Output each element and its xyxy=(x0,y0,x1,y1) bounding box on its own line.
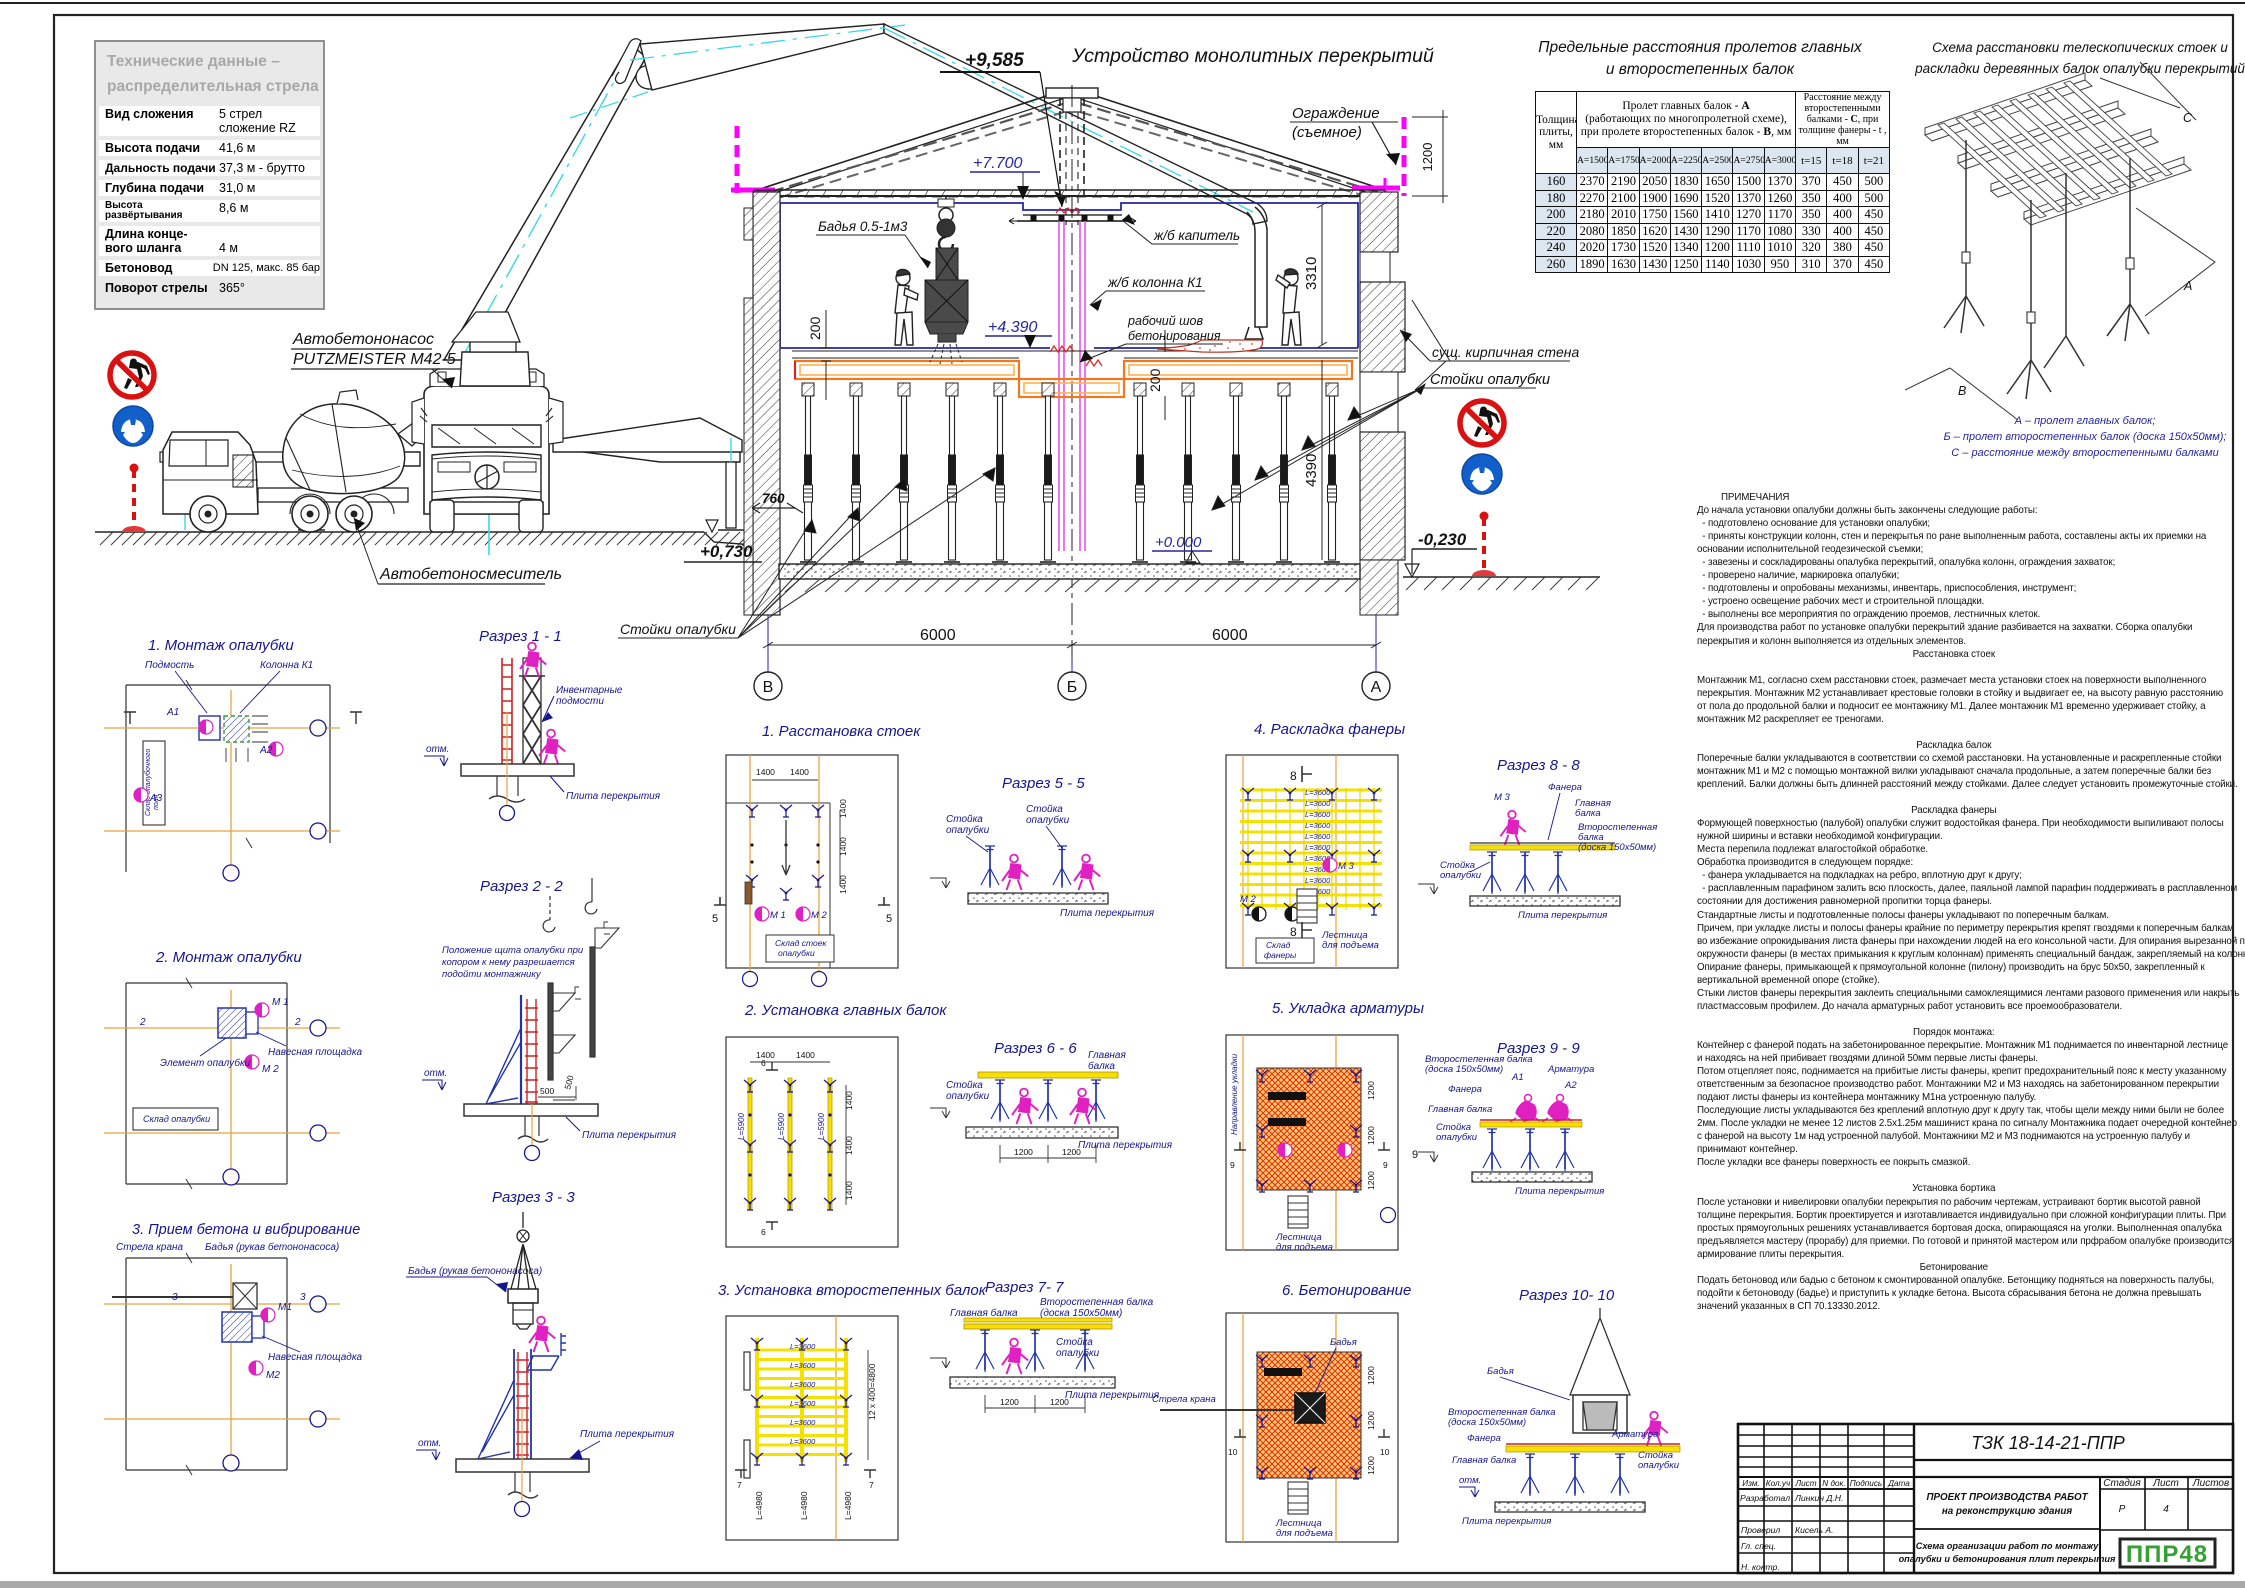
svg-text:9: 9 xyxy=(1383,1160,1388,1170)
svg-text:С – расстояние между второсте: С – расстояние между второстепенными бал… xyxy=(1951,447,2218,459)
svg-text:1200: 1200 xyxy=(1366,1126,1376,1145)
svg-text:2. Монтаж опалубки: 2. Монтаж опалубки xyxy=(155,949,302,966)
svg-text:Бадья (рукав бетононасоса): Бадья (рукав бетононасоса) xyxy=(205,1241,339,1253)
svg-text:6. Бетонирование: 6. Бетонирование xyxy=(1282,1282,1411,1299)
svg-text:L=4980: L=4980 xyxy=(754,1491,764,1520)
svg-text:Второстепенная балка: Второстепенная балка xyxy=(1040,1296,1154,1308)
svg-text:на реконструкцию здания: на реконструкцию здания xyxy=(1942,1506,2072,1517)
svg-text:1200: 1200 xyxy=(1366,1411,1376,1430)
svg-text:копором к нему разрешается: копором к нему разрешается xyxy=(442,957,575,968)
svg-text:760: 760 xyxy=(762,491,785,506)
svg-text:фанеры: фанеры xyxy=(1264,950,1297,960)
svg-text:L=3600: L=3600 xyxy=(790,1437,816,1446)
svg-text:1. Расстановка стоек: 1. Расстановка стоек xyxy=(762,723,921,740)
svg-text:2: 2 xyxy=(139,1017,146,1028)
svg-text:1200: 1200 xyxy=(1366,1456,1376,1475)
svg-text:А: А xyxy=(2183,279,2192,293)
svg-text:L=3600: L=3600 xyxy=(1305,843,1331,852)
svg-text:Плита перекрытия: Плита перекрытия xyxy=(1462,1516,1551,1527)
svg-text:Главная: Главная xyxy=(1088,1050,1126,1061)
svg-text:L=3600: L=3600 xyxy=(790,1380,816,1389)
svg-text:М 2: М 2 xyxy=(262,1064,279,1075)
svg-text:1400: 1400 xyxy=(796,1050,815,1060)
svg-text:В: В xyxy=(1958,384,1966,398)
svg-text:8: 8 xyxy=(1290,769,1297,783)
svg-text:Главная балка: Главная балка xyxy=(1452,1455,1516,1466)
svg-text:10: 10 xyxy=(1380,1447,1390,1457)
svg-text:Навесная площадка: Навесная площадка xyxy=(268,1352,363,1363)
svg-text:Бадья: Бадья xyxy=(1330,1337,1357,1348)
svg-text:Бадья: Бадья xyxy=(1487,1366,1514,1377)
svg-text:Плита перекрытия: Плита перекрытия xyxy=(1060,908,1155,919)
svg-text:Стрела крана: Стрела крана xyxy=(116,1242,184,1253)
svg-text:подойти монтажнику: подойти монтажнику xyxy=(442,969,542,980)
svg-text:Склад опалубочного: Склад опалубочного xyxy=(144,749,152,816)
svg-text:3. Установка второстепенных б: 3. Установка второстепенных балок xyxy=(718,1282,987,1299)
svg-text:Разработал: Разработал xyxy=(1740,1493,1790,1503)
svg-text:опалубки: опалубки xyxy=(1026,814,1070,826)
svg-text:Схема организации работ по мон: Схема организации работ по монтажу xyxy=(1916,1541,2100,1551)
svg-text:Схема расстановки телескопичес: Схема расстановки телескопических стоек … xyxy=(1932,40,2228,55)
svg-text:Разрез 8 - 8: Разрез 8 - 8 xyxy=(1497,757,1580,774)
svg-text:Автобетоносмеситель: Автобетоносмеситель xyxy=(379,566,562,583)
svg-text:PUTZMEISTER M42-5: PUTZMEISTER M42-5 xyxy=(293,351,456,368)
svg-text:10: 10 xyxy=(1228,1447,1238,1457)
svg-text:Положение щита опалубки при: Положение щита опалубки при xyxy=(442,945,584,956)
svg-text:ж/б колонна К1: ж/б колонна К1 xyxy=(1107,275,1203,290)
svg-text:А – пролет главных балок;: А – пролет главных балок; xyxy=(2014,415,2156,427)
svg-text:+9,585: +9,585 xyxy=(965,50,1024,71)
svg-text:Склад опалубки: Склад опалубки xyxy=(143,1114,210,1124)
svg-text:Кисель А.: Кисель А. xyxy=(1795,1525,1834,1535)
svg-text:А: А xyxy=(1371,679,1382,696)
svg-text:7: 7 xyxy=(869,1480,874,1490)
svg-text:опалубки и бетонирования плит: опалубки и бетонирования плит перекрытия xyxy=(1899,1554,2116,1564)
svg-text:1. Монтаж опалубки: 1. Монтаж опалубки xyxy=(148,637,294,654)
svg-text:7: 7 xyxy=(737,1480,742,1490)
svg-text:Арматура: Арматура xyxy=(1547,1064,1594,1075)
svg-text:4390: 4390 xyxy=(1303,454,1320,487)
svg-text:Лист: Лист xyxy=(1794,1479,1816,1488)
svg-text:1400: 1400 xyxy=(844,1091,854,1110)
svg-text:отм.: отм. xyxy=(1459,1475,1481,1486)
svg-text:Плита перекрытия: Плита перекрытия xyxy=(566,791,661,802)
svg-text:М 1: М 1 xyxy=(272,997,289,1008)
svg-text:1200: 1200 xyxy=(1420,143,1435,172)
svg-text:1200: 1200 xyxy=(1366,1081,1376,1100)
svg-text:500: 500 xyxy=(562,1074,575,1091)
svg-text:L=5900: L=5900 xyxy=(777,1113,786,1140)
svg-text:М 2: М 2 xyxy=(811,910,828,921)
svg-text:Главная балка: Главная балка xyxy=(950,1307,1018,1319)
svg-text:С: С xyxy=(2183,111,2193,125)
svg-text:Стойка: Стойка xyxy=(1026,804,1063,815)
svg-text:Подпись: Подпись xyxy=(1850,1479,1882,1488)
svg-text:Склад: Склад xyxy=(1266,940,1291,950)
svg-text:опалубки: опалубки xyxy=(1436,1132,1478,1143)
svg-text:М 3: М 3 xyxy=(1338,861,1355,872)
svg-text:5: 5 xyxy=(886,913,892,925)
svg-text:М 1: М 1 xyxy=(770,910,786,921)
svg-text:L=5900: L=5900 xyxy=(737,1113,746,1140)
svg-text:5: 5 xyxy=(712,913,718,925)
svg-text:бетонирования: бетонирования xyxy=(1128,329,1221,343)
svg-text:L=5900: L=5900 xyxy=(817,1113,826,1140)
svg-text:Р: Р xyxy=(2119,1504,2126,1515)
svg-text:для подъема: для подъема xyxy=(1322,940,1379,951)
svg-text:6: 6 xyxy=(761,1058,766,1068)
svg-text:А1: А1 xyxy=(1511,1072,1524,1083)
svg-text:Элемент опалубки: Элемент опалубки xyxy=(160,1057,251,1069)
svg-text:1400: 1400 xyxy=(838,837,848,856)
svg-text:А2: А2 xyxy=(259,745,273,756)
svg-text:1200: 1200 xyxy=(1366,1366,1376,1385)
svg-text:4: 4 xyxy=(2163,1504,2169,1515)
svg-text:Разрез 10- 10: Разрез 10- 10 xyxy=(1519,1287,1615,1304)
svg-text:Стойки опалубки: Стойки опалубки xyxy=(620,621,736,637)
svg-text:Главная балка: Главная балка xyxy=(1428,1104,1492,1115)
svg-text:Арматура: Арматура xyxy=(1611,1429,1658,1440)
svg-text:М1: М1 xyxy=(278,1302,292,1313)
svg-text:500: 500 xyxy=(540,1086,554,1096)
svg-text:Б – пролет второстепенных бал: Б – пролет второстепенных балок (доска 1… xyxy=(1944,431,2227,443)
svg-text:Листов: Листов xyxy=(2192,1478,2229,1489)
svg-text:ТЗК 18-14-21-ППР: ТЗК 18-14-21-ППР xyxy=(1971,1433,2125,1453)
svg-text:Устройство монолитных перекрыт: Устройство монолитных перекрытий xyxy=(1071,45,1434,67)
svg-text:Плита перекрытия: Плита перекрытия xyxy=(580,1429,675,1440)
svg-text:1400: 1400 xyxy=(844,1181,854,1200)
svg-text:ж/б капитель: ж/б капитель xyxy=(1153,228,1240,243)
svg-text:L=3600: L=3600 xyxy=(1305,788,1331,797)
svg-text:сущ. кирпичная стена: сущ. кирпичная стена xyxy=(1432,344,1579,360)
svg-text:9: 9 xyxy=(1230,1160,1235,1170)
svg-text:Гл. спец.: Гл. спец. xyxy=(1741,1541,1776,1551)
svg-text:Н. контр.: Н. контр. xyxy=(1741,1562,1780,1572)
svg-text:6000: 6000 xyxy=(1212,627,1248,644)
svg-text:2. Установка главных балок: 2. Установка главных балок xyxy=(744,1002,947,1019)
svg-text:Разрез 3 - 3: Разрез 3 - 3 xyxy=(492,1189,575,1206)
svg-text:8: 8 xyxy=(1290,925,1297,939)
svg-text:рабочий шов: рабочий шов xyxy=(1127,314,1203,328)
svg-text:200: 200 xyxy=(807,316,823,340)
svg-text:L=3600: L=3600 xyxy=(1305,876,1331,885)
svg-text:М2: М2 xyxy=(266,1370,280,1381)
svg-text:5. Укладка арматуры: 5. Укладка арматуры xyxy=(1272,1000,1424,1017)
svg-text:М 2: М 2 xyxy=(1240,894,1257,905)
svg-text:Разрез 6 - 6: Разрез 6 - 6 xyxy=(994,1040,1077,1057)
svg-text:Стойка: Стойка xyxy=(946,814,983,825)
svg-text:Линкин Д.Н.: Линкин Д.Н. xyxy=(1794,1493,1843,1503)
svg-text:-0,230: -0,230 xyxy=(1418,530,1467,549)
svg-text:опалубки: опалубки xyxy=(1440,870,1482,881)
svg-text:1400: 1400 xyxy=(790,767,809,777)
svg-text:отм.: отм. xyxy=(426,744,449,755)
svg-text:1200: 1200 xyxy=(1000,1397,1019,1407)
svg-text:1200: 1200 xyxy=(1366,1171,1376,1190)
svg-text:Плита перекрытия: Плита перекрытия xyxy=(1078,1140,1173,1151)
svg-text:+4.390: +4.390 xyxy=(988,319,1037,336)
svg-text:Стадия: Стадия xyxy=(2103,1478,2141,1489)
svg-text:для подъема: для подъема xyxy=(1276,1242,1333,1253)
svg-text:+0.000: +0.000 xyxy=(1155,534,1202,551)
svg-text:Предельные расстояния пролетов: Предельные расстояния пролетов главных xyxy=(1538,39,1863,56)
svg-text:(доска 150х50мм): (доска 150х50мм) xyxy=(1448,1417,1526,1428)
svg-text:L=3600: L=3600 xyxy=(1305,832,1331,841)
svg-text:6: 6 xyxy=(761,1227,766,1237)
svg-text:отм.: отм. xyxy=(424,1068,447,1079)
svg-text:1400: 1400 xyxy=(838,875,848,894)
svg-text:Кол.уч: Кол.уч xyxy=(1766,1479,1791,1488)
svg-text:А1: А1 xyxy=(166,707,179,718)
svg-text:Плита перекрытия: Плита перекрытия xyxy=(582,1130,677,1141)
svg-text:Б: Б xyxy=(1067,679,1078,696)
svg-text:Проверил: Проверил xyxy=(1741,1525,1780,1535)
svg-text:Склад стоек: Склад стоек xyxy=(775,938,827,948)
svg-text:Стойка: Стойка xyxy=(946,1080,983,1091)
svg-text:балка: балка xyxy=(1088,1060,1115,1072)
svg-text:L=4980: L=4980 xyxy=(799,1491,809,1520)
svg-text:L=4980: L=4980 xyxy=(843,1491,853,1520)
svg-text:Стрела крана: Стрела крана xyxy=(1152,1394,1216,1405)
svg-text:12 х 400=4800: 12 х 400=4800 xyxy=(867,1363,877,1420)
svg-text:Плита перекрытия: Плита перекрытия xyxy=(1518,910,1607,921)
svg-text:опалубки: опалубки xyxy=(946,824,990,836)
svg-text:L=3600: L=3600 xyxy=(790,1399,816,1408)
svg-text:3: 3 xyxy=(172,1292,178,1303)
svg-text:подмости: подмости xyxy=(556,696,604,707)
svg-text:А2: А2 xyxy=(1564,1080,1577,1091)
svg-text:3310: 3310 xyxy=(1303,257,1320,290)
svg-text:А3: А3 xyxy=(149,793,163,804)
svg-text:опалубки: опалубки xyxy=(1638,1460,1680,1471)
svg-text:1400: 1400 xyxy=(838,799,848,818)
svg-text:200: 200 xyxy=(1147,368,1163,392)
svg-text:L=3600: L=3600 xyxy=(790,1361,816,1370)
svg-text:Ограждение: Ограждение xyxy=(1292,105,1380,122)
svg-text:и второстепенных балок: и второстепенных балок xyxy=(1606,61,1795,78)
svg-text:для подъема: для подъема xyxy=(1276,1528,1333,1539)
svg-text:Стойка: Стойка xyxy=(1056,1337,1093,1348)
svg-text:Разрез 1 - 1: Разрез 1 - 1 xyxy=(479,628,562,645)
svg-text:Навесная площадка: Навесная площадка xyxy=(268,1047,363,1058)
svg-text:опалубки: опалубки xyxy=(946,1090,990,1102)
svg-text:1400: 1400 xyxy=(844,1136,854,1155)
svg-text:Плита перекрытия: Плита перекрытия xyxy=(1515,1186,1604,1197)
svg-text:2: 2 xyxy=(294,1017,301,1028)
svg-text:Изм.: Изм. xyxy=(1742,1479,1759,1488)
svg-text:Бадья (рукав бетононасоса): Бадья (рукав бетононасоса) xyxy=(408,1265,542,1277)
svg-text:1200: 1200 xyxy=(1014,1147,1033,1157)
svg-text:3. Прием бетона и вибрировани: 3. Прием бетона и вибрирование xyxy=(132,1222,360,1238)
svg-text:Направление укладки: Направление укладки xyxy=(1230,1053,1239,1135)
svg-text:Стойки опалубки: Стойки опалубки xyxy=(1430,372,1550,388)
svg-text:Автобетононасос: Автобетононасос xyxy=(292,331,434,348)
svg-text:N док.: N док. xyxy=(1822,1479,1845,1488)
svg-text:9: 9 xyxy=(1412,1149,1418,1161)
svg-text:Разрез 5 - 5: Разрез 5 - 5 xyxy=(1002,775,1085,792)
svg-text:L=3600: L=3600 xyxy=(1305,799,1331,808)
svg-text:ППР48: ППР48 xyxy=(2126,1541,2208,1568)
svg-text:+7.700: +7.700 xyxy=(973,155,1022,172)
svg-text:опалубки: опалубки xyxy=(778,948,815,958)
svg-text:отм.: отм. xyxy=(418,1438,441,1449)
svg-text:(съемное): (съемное) xyxy=(1292,124,1362,141)
svg-text:L=3600: L=3600 xyxy=(1305,821,1331,830)
svg-text:раскладки деревянных балок опа: раскладки деревянных балок опалубки пере… xyxy=(1914,61,2245,76)
svg-text:Бадья 0.5-1м3: Бадья 0.5-1м3 xyxy=(818,219,908,234)
svg-text:L=3600: L=3600 xyxy=(790,1342,816,1351)
svg-text:Дата: Дата xyxy=(1887,1479,1910,1488)
svg-text:3: 3 xyxy=(300,1292,306,1303)
svg-text:Колонна К1: Колонна К1 xyxy=(260,660,313,671)
svg-text:М 3: М 3 xyxy=(1494,792,1511,803)
svg-text:4. Раскладка фанеры: 4. Раскладка фанеры xyxy=(1254,721,1405,738)
svg-text:Подмость: Подмость xyxy=(145,660,194,671)
svg-text:(доска 150х50мм): (доска 150х50мм) xyxy=(1040,1308,1122,1319)
svg-text:L=3600: L=3600 xyxy=(790,1418,816,1427)
svg-text:Фанера: Фанера xyxy=(1448,1084,1482,1095)
svg-text:Плита перекрытия: Плита перекрытия xyxy=(1065,1390,1160,1401)
svg-text:6000: 6000 xyxy=(920,627,956,644)
svg-text:Фанера: Фанера xyxy=(1548,782,1582,793)
svg-text:(доска 150х50мм): (доска 150х50мм) xyxy=(1578,842,1656,853)
svg-text:ПРОЕКТ ПРОИЗВОДСТВА РАБОТ: ПРОЕКТ ПРОИЗВОДСТВА РАБОТ xyxy=(1926,1492,2088,1503)
svg-text:1400: 1400 xyxy=(756,767,775,777)
svg-text:Лист: Лист xyxy=(2152,1478,2179,1489)
svg-text:опалубки: опалубки xyxy=(1056,1347,1100,1359)
svg-text:L=3600: L=3600 xyxy=(1305,810,1331,819)
svg-text:В: В xyxy=(763,679,774,696)
svg-text:Инвентарные: Инвентарные xyxy=(556,685,623,696)
svg-text:(доска 150х50мм): (доска 150х50мм) xyxy=(1425,1064,1503,1075)
svg-text:Разрез 2 - 2: Разрез 2 - 2 xyxy=(480,878,563,895)
svg-text:балка: балка xyxy=(1575,808,1601,819)
svg-text:Разрез 7- 7: Разрез 7- 7 xyxy=(985,1279,1064,1296)
svg-text:+0,730: +0,730 xyxy=(700,542,753,561)
svg-text:Фанера: Фанера xyxy=(1467,1433,1501,1444)
